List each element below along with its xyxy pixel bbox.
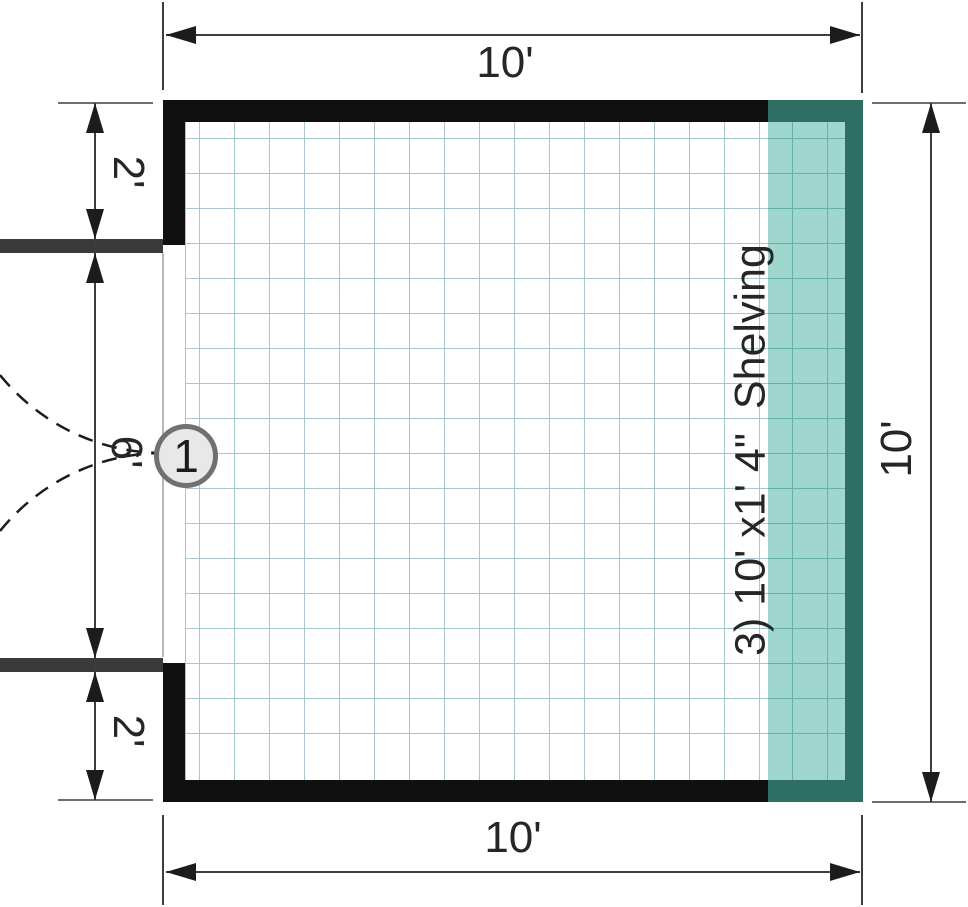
door-keynote-number: 1 [173,429,199,483]
arrow-down-icon [86,770,104,800]
dimension-label-door-width: 6' [104,436,148,469]
arrow-right-icon [830,26,860,44]
dimension-label-top: 10' [476,41,533,85]
door-keynote-marker: 1 [154,424,218,488]
floor-plan-canvas: 10' 10' 10' 2' 6' 2' 3) 10' x1' 4" Shelv… [0,0,968,907]
arrow-left-icon [166,863,196,881]
arrow-up-icon [922,103,940,133]
dimension-label-right: 10' [875,420,919,477]
arrow-down-icon [86,628,104,658]
shelving-note: 3) 10' x1' 4" Shelving [730,244,773,656]
arrow-up-icon [86,103,104,133]
arrow-left-icon [166,26,196,44]
dimension-label-left-bottom: 2' [106,715,150,748]
arrow-up-icon [86,672,104,702]
arrow-up-icon [86,253,104,283]
dimension-label-bottom: 10' [484,816,541,860]
arrow-down-icon [86,209,104,239]
dimension-label-left-top: 2' [106,156,150,189]
arrow-right-icon [830,863,860,881]
arrow-down-icon [922,772,940,802]
